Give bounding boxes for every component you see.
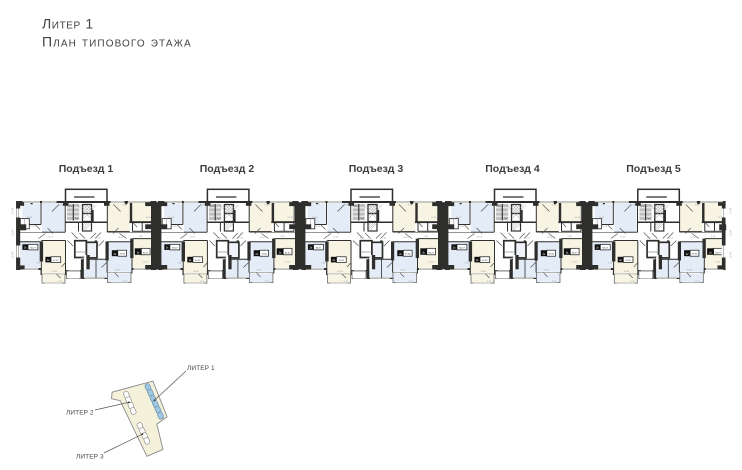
svg-text:Подъезд 4: Подъезд 4 <box>485 163 540 175</box>
svg-text:Подъезд 1: Подъезд 1 <box>59 163 114 175</box>
svg-text:Подъезд 2: Подъезд 2 <box>200 163 255 175</box>
svg-text:10.04: 10.04 <box>731 208 733 214</box>
svg-text:10.04: 10.04 <box>731 230 733 236</box>
svg-text:Литер 1: Литер 1 <box>42 16 94 32</box>
svg-text:ЛИТЕР 3: ЛИТЕР 3 <box>76 454 104 461</box>
svg-text:10.04: 10.04 <box>13 230 15 236</box>
svg-text:10.04: 10.04 <box>13 252 15 258</box>
svg-text:Подъезд 3: Подъезд 3 <box>349 163 404 175</box>
svg-text:ЛИТЕР 2: ЛИТЕР 2 <box>66 410 94 417</box>
svg-text:10.04: 10.04 <box>13 208 15 214</box>
svg-text:План типового этажа: План типового этажа <box>42 34 192 50</box>
svg-text:10.04: 10.04 <box>731 252 733 258</box>
svg-text:ЛИТЕР 1: ЛИТЕР 1 <box>187 365 215 372</box>
svg-text:Подъезд 5: Подъезд 5 <box>626 163 681 175</box>
